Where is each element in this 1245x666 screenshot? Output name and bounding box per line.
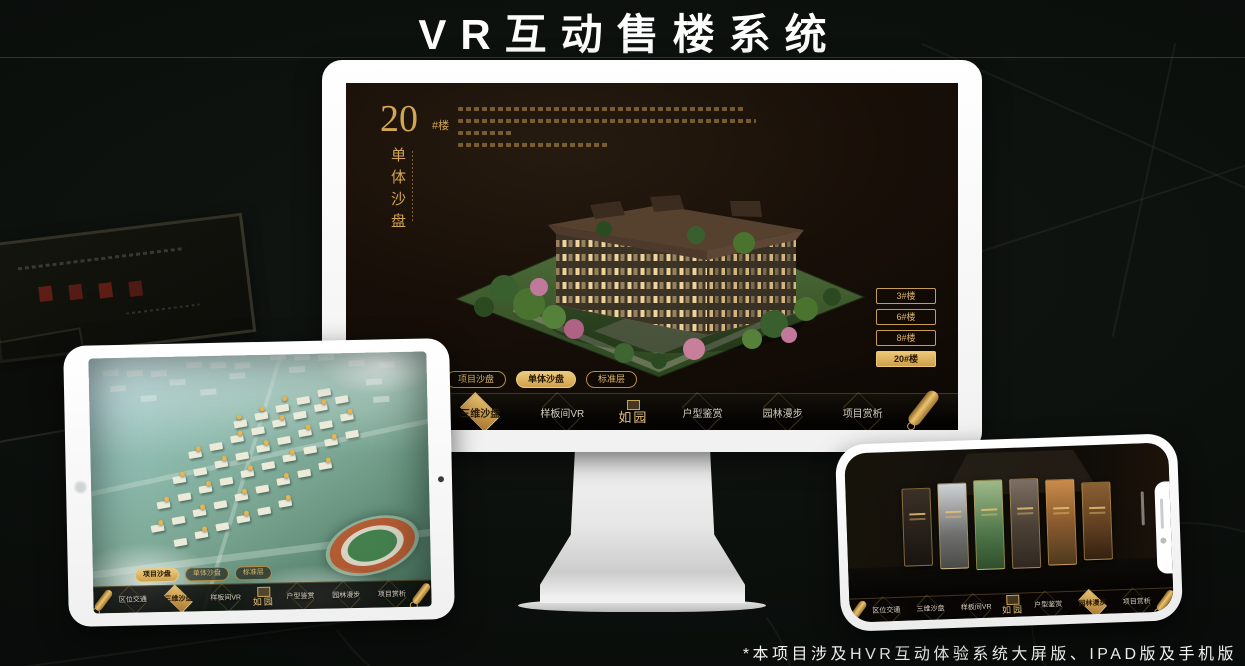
panorama-card-interior[interactable] (901, 488, 933, 567)
panorama-card-building[interactable] (1009, 478, 1041, 569)
plaque-red-characters (38, 285, 53, 301)
building-badge-number: 20 (380, 97, 418, 141)
nav-item-location-traffic[interactable]: 区位交通 (866, 602, 906, 617)
card-label (1017, 507, 1033, 510)
brand-name: 如园 (253, 598, 275, 607)
nav-item-location-traffic[interactable]: 区位交通 (113, 592, 153, 607)
nav-item-label: 样板间VR (961, 603, 992, 611)
phone-screen: 区位交通 三维沙盘 样板间VR 如园 户型鉴赏 园林漫步 项目赏析 (844, 442, 1174, 622)
nav-item-label: 项目赏析 (843, 409, 883, 420)
sandtable-tab-group: 项目沙盘 单体沙盘 标准层 (135, 566, 272, 583)
description-line (458, 119, 756, 123)
building-badge-suffix: #楼 (432, 117, 449, 133)
nav-item-garden-walk[interactable]: 园林漫步 (326, 588, 366, 603)
nav-item-label: 项目赏析 (378, 591, 406, 599)
card-label (981, 509, 997, 512)
floor-button-3[interactable]: 3#楼 (876, 288, 936, 304)
home-button (438, 476, 444, 482)
tab-project-sandtable[interactable]: 项目沙盘 (446, 371, 506, 388)
tab-project-sandtable[interactable]: 项目沙盘 (135, 568, 179, 583)
building-model-illustration (444, 139, 876, 379)
card-label (1053, 507, 1069, 510)
tab-single-building-sandtable[interactable]: 单体沙盘 (516, 371, 576, 388)
camera-icon (1160, 537, 1166, 543)
nav-item-garden-walk[interactable]: 园林漫步 (757, 403, 809, 422)
tab-standard-floor[interactable]: 标准层 (586, 371, 637, 388)
scroll-icon[interactable] (1155, 588, 1174, 612)
nav-item-project-gallery[interactable]: 项目赏析 (1116, 593, 1156, 608)
nav-item-label: 区位交通 (119, 596, 147, 604)
nav-item-3d-sandtable[interactable]: 三维沙盘 (910, 601, 950, 616)
seal-icon (627, 400, 640, 410)
floor-button-group: 3#楼 6#楼 8#楼 20#楼 (876, 288, 936, 367)
floor-button-6[interactable]: 6#楼 (876, 309, 936, 325)
footnote: *本项目涉及HVR互动体验系统大屏版、IPAD版及手机版 (743, 640, 1237, 664)
nav-item-label: 三维沙盘 (165, 595, 193, 603)
scroll-icon[interactable] (848, 599, 869, 623)
nav-item-label: 户型鉴赏 (286, 593, 314, 601)
brand-logo: 如园 (253, 586, 275, 607)
speaker-icon (1160, 498, 1164, 528)
scroll-icon[interactable] (906, 388, 941, 428)
phone-device: 区位交通 三维沙盘 样板间VR 如园 户型鉴赏 园林漫步 项目赏析 (835, 433, 1183, 632)
seal-icon (257, 586, 270, 596)
card-label (945, 511, 961, 514)
seal-icon (1006, 595, 1019, 605)
tab-single-building-sandtable[interactable]: 单体沙盘 (185, 567, 229, 582)
nav-item-label: 园林漫步 (763, 409, 803, 420)
badge-english-caption (412, 151, 413, 223)
page: VR互动售楼系统 20 #楼 单体沙盘 (0, 0, 1245, 666)
floor-button-20[interactable]: 20#楼 (876, 351, 936, 367)
scroll-icon[interactable] (93, 588, 114, 612)
plaque-text-line (18, 247, 185, 270)
brand-logo: 如园 (1001, 595, 1024, 617)
nav-item-garden-walk[interactable]: 园林漫步 (1072, 595, 1112, 610)
nav-item-label: 三维沙盘 (916, 605, 944, 613)
floor-button-8[interactable]: 8#楼 (876, 330, 936, 346)
tablet-device: 项目沙盘 单体沙盘 标准层 区位交通 三维沙盘 样板间VR 如园 户型鉴赏 园林… (63, 338, 455, 627)
nav-item-project-gallery[interactable]: 项目赏析 (837, 403, 889, 422)
nav-item-label: 户型鉴赏 (1034, 601, 1062, 609)
nav-item-floorplan[interactable]: 户型鉴赏 (676, 403, 728, 422)
brand-name: 如园 (618, 412, 648, 425)
plaque-text-line (126, 304, 200, 315)
panorama-card-shelf[interactable] (1081, 481, 1113, 560)
panorama-card-garden[interactable] (973, 479, 1005, 570)
nav-item-project-gallery[interactable]: 项目赏析 (372, 587, 412, 602)
tab-standard-floor[interactable]: 标准层 (235, 566, 272, 581)
nav-item-model-room-vr[interactable]: 样板间VR (204, 590, 247, 605)
nav-item-label: 园林漫步 (332, 592, 360, 600)
building-badge-subtitle: 单体沙盘 (388, 147, 409, 235)
front-camera-icon (74, 480, 87, 493)
nav-item-label: 区位交通 (872, 606, 900, 614)
card-label (909, 513, 925, 516)
nav-item-model-room-vr[interactable]: 样板间VR (955, 599, 998, 614)
panorama-card-strip (901, 474, 1113, 573)
panorama-card-kitchen[interactable] (937, 482, 969, 569)
nav-item-label: 样板间VR (210, 594, 241, 602)
nav-item-model-room-vr[interactable]: 样板间VR (534, 403, 590, 422)
card-label (1089, 507, 1105, 510)
description-line (458, 107, 746, 111)
nav-item-label: 三维沙盘 (460, 409, 500, 420)
brand-name: 如园 (1002, 607, 1024, 617)
scroll-icon[interactable] (411, 582, 431, 606)
description-line (458, 131, 512, 135)
page-title: VR互动售楼系统 (0, 1, 1245, 62)
nav-item-label: 项目赏析 (1123, 598, 1151, 606)
nav-item-floorplan[interactable]: 户型鉴赏 (280, 589, 320, 604)
phone-notch (1154, 481, 1172, 573)
nav-item-label: 户型鉴赏 (682, 409, 722, 420)
panorama-card-autumn[interactable] (1045, 479, 1077, 566)
tablet-screen: 项目沙盘 单体沙盘 标准层 区位交通 三维沙盘 样板间VR 如园 户型鉴赏 园林… (88, 351, 431, 613)
nav-item-3d-sandtable[interactable]: 三维沙盘 (454, 403, 506, 422)
nav-item-label: 园林漫步 (1078, 599, 1106, 607)
brand-logo: 如园 (618, 400, 648, 425)
sandtable-tab-group: 项目沙盘 单体沙盘 标准层 (446, 371, 637, 388)
nav-item-label: 样板间VR (540, 409, 584, 420)
nav-item-3d-sandtable[interactable]: 三维沙盘 (158, 591, 198, 606)
nav-item-floorplan[interactable]: 户型鉴赏 (1028, 596, 1068, 611)
